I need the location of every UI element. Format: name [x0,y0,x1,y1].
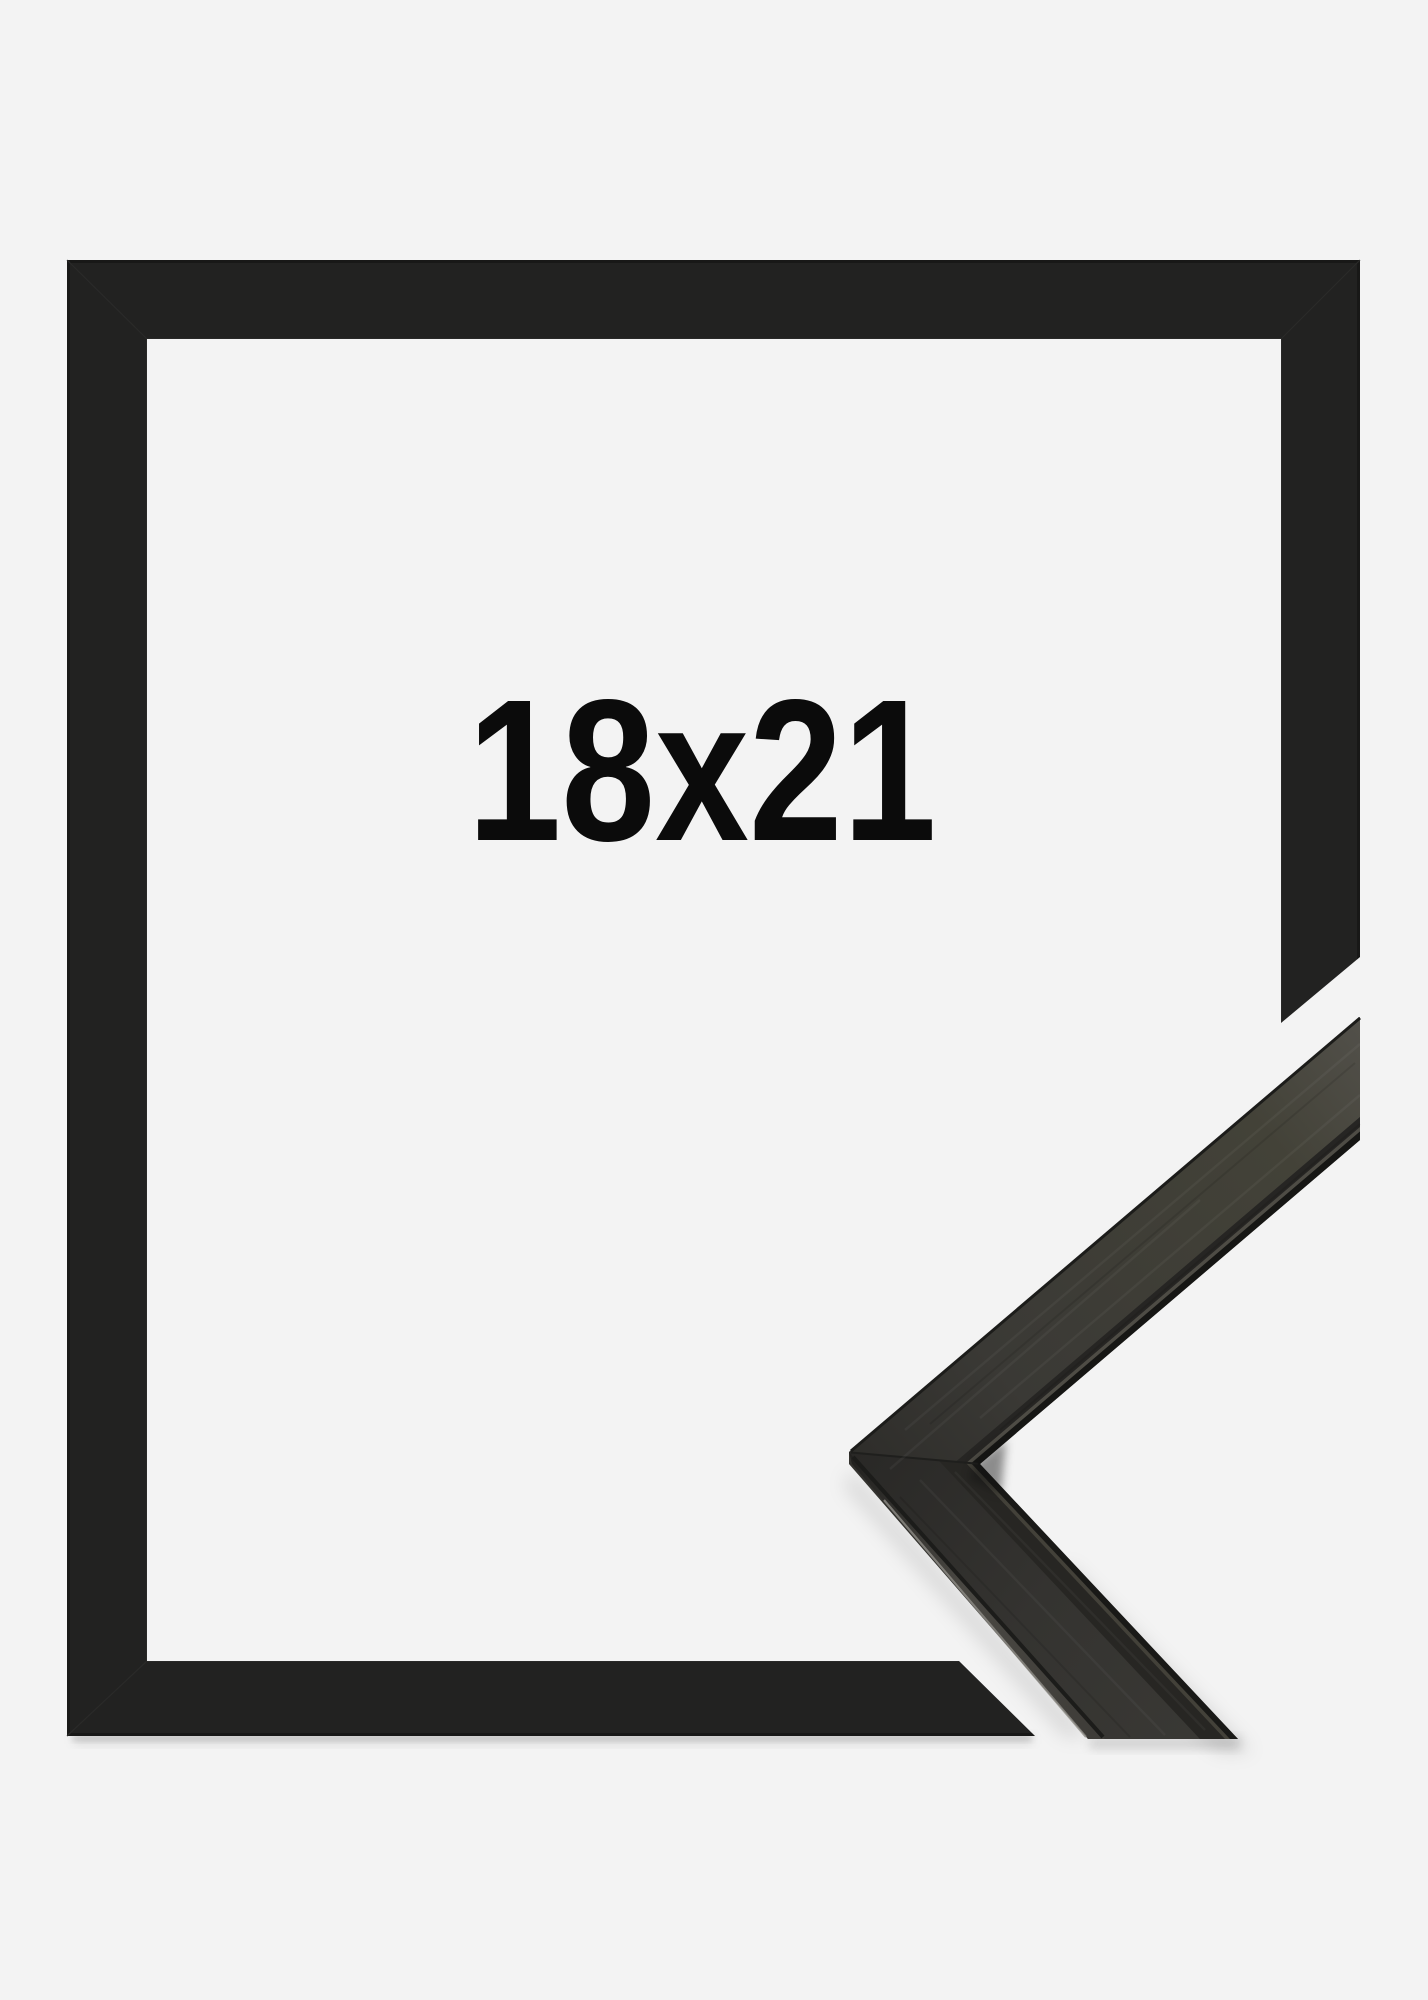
svg-text:18x21: 18x21 [468,657,937,883]
